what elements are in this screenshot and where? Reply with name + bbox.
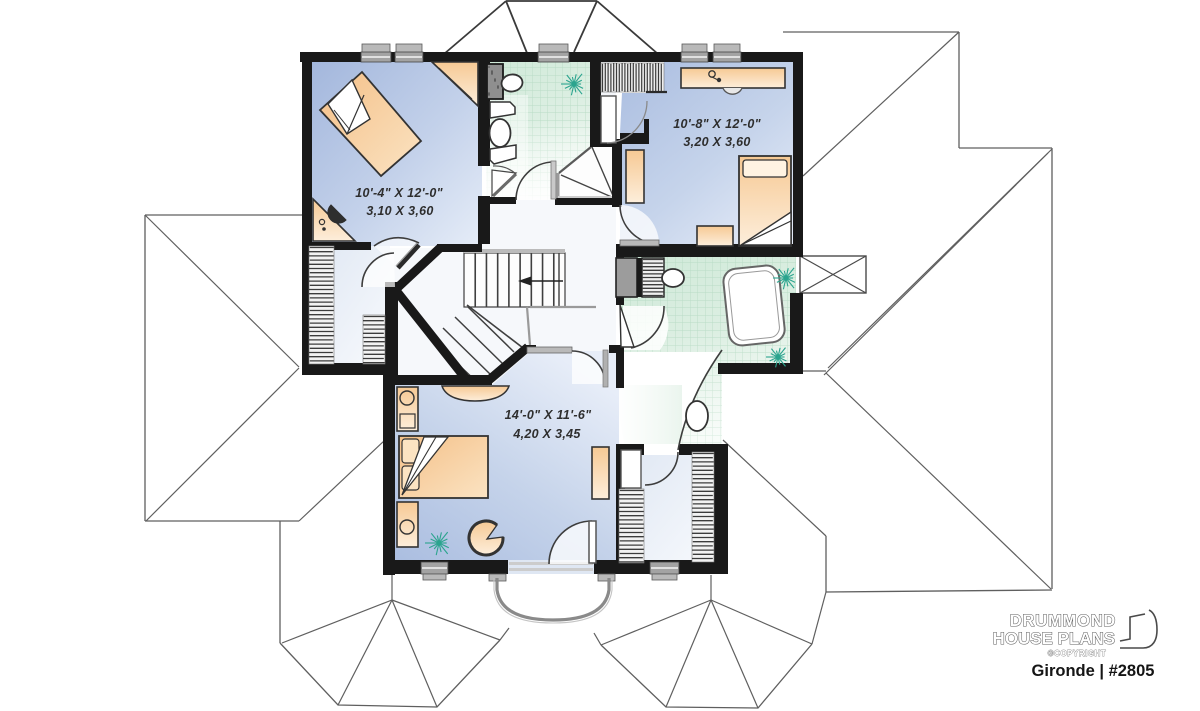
svg-text:DRUMMOND: DRUMMOND [1010,612,1116,630]
svg-text:10'-4" X 12'-0": 10'-4" X 12'-0" [355,186,443,200]
svg-text:4,20 X 3,45: 4,20 X 3,45 [512,427,581,441]
svg-text:3,20 X 3,60: 3,20 X 3,60 [683,135,750,149]
svg-text:3,10 X 3,60: 3,10 X 3,60 [366,204,433,218]
svg-text:Gironde | #2805: Gironde | #2805 [1032,662,1155,680]
svg-text:HOUSE PLANS: HOUSE PLANS [993,630,1115,648]
svg-text:14'-0" X 11'-6": 14'-0" X 11'-6" [505,408,592,422]
svg-text:10'-8" X 12'-0": 10'-8" X 12'-0" [673,117,761,131]
svg-text:©COPYRIGHT: ©COPYRIGHT [1048,649,1106,658]
